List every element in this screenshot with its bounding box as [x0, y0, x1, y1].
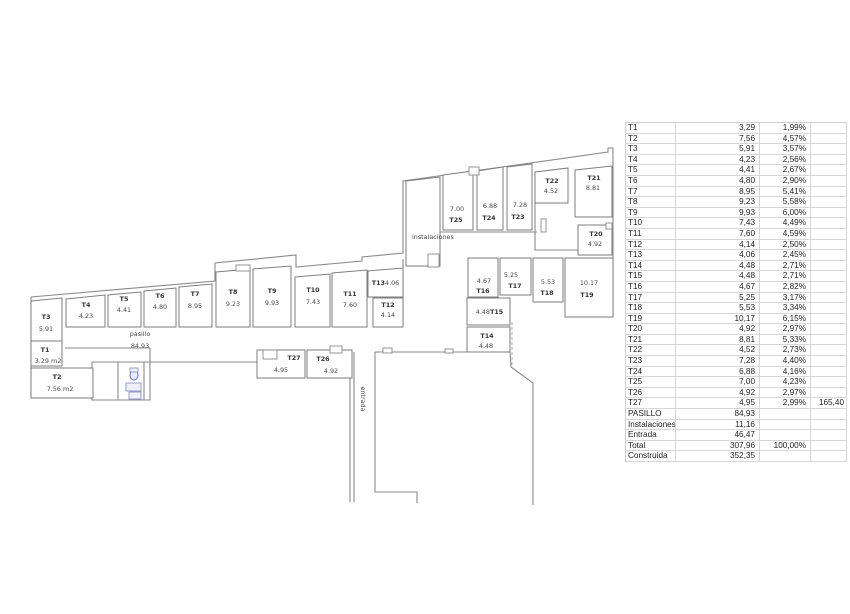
wall: [510, 352, 533, 505]
table-cell-lbl: T16: [626, 282, 676, 293]
room-area: 5.91: [39, 325, 53, 333]
room-name: T26: [316, 355, 330, 363]
room-t12: T124.14: [373, 298, 403, 327]
wall-tab: [330, 346, 342, 353]
room-name: T2: [53, 373, 62, 381]
table-cell-lbl: T3: [626, 144, 676, 155]
table-cell-pct: 3,57%: [760, 144, 811, 155]
table-cell-pct: 1,99%: [760, 123, 811, 134]
room-name: T21: [587, 174, 600, 182]
table-cell-lbl: T11: [626, 229, 676, 240]
table-cell-pct: 2,67%: [760, 165, 811, 176]
table-cell-ext: [811, 218, 847, 229]
table-cell-ext: [811, 420, 847, 431]
table-cell-val: 11,16: [676, 420, 760, 431]
table-cell-ext: [811, 271, 847, 282]
room-name: T12: [381, 301, 394, 309]
table-cell-val: 4,41: [676, 165, 760, 176]
room-t10: T107.43: [295, 274, 330, 327]
room-name: T19: [580, 291, 594, 299]
table-cell-val: 4,14: [676, 240, 760, 251]
table-cell-lbl: T24: [626, 367, 676, 378]
room-t1: T13.29 m2: [31, 341, 62, 366]
table-cell-lbl: T19: [626, 314, 676, 325]
table-cell-lbl: T15: [626, 271, 676, 282]
room-area: 5.53: [541, 278, 555, 286]
room-name: T4: [82, 301, 91, 309]
instalaciones-label: instalaciones: [412, 233, 454, 241]
table-cell-lbl: T25: [626, 377, 676, 388]
room-outline: [253, 266, 291, 327]
table-cell-pct: 2,82%: [760, 282, 811, 293]
table-row: Entrada46,47: [626, 430, 847, 441]
table-row: Construida352,35: [626, 451, 847, 462]
table-cell-val: 84,93: [676, 409, 760, 420]
table-cell-val: 352,35: [676, 451, 760, 462]
room-area: 4.48: [479, 342, 493, 350]
wall-tab: [236, 265, 250, 271]
table-cell-pct: 4,49%: [760, 218, 811, 229]
table-cell-ext: [811, 377, 847, 388]
table-cell-pct: 2,97%: [760, 324, 811, 335]
table-cell-lbl: T18: [626, 303, 676, 314]
room-outline: [565, 258, 613, 317]
table-cell-lbl: Instalaciones: [626, 420, 676, 431]
room-outline: [216, 269, 250, 327]
room-name: T1: [41, 346, 50, 354]
room-name: T16: [476, 287, 490, 295]
table-row: T164,672,82%: [626, 282, 847, 293]
table-cell-pct: 2,56%: [760, 155, 811, 166]
table-row: T89,235,58%: [626, 197, 847, 208]
room-area: 8.81: [586, 184, 600, 192]
room-area: 7.43: [306, 298, 320, 306]
table-cell-ext: [811, 367, 847, 378]
table-cell-val: 7,00: [676, 377, 760, 388]
room-area: 7.00: [450, 205, 464, 213]
table-cell-ext: [811, 324, 847, 335]
room-t17: 5.25T17: [500, 258, 531, 295]
table-row: Instalaciones11,16: [626, 420, 847, 431]
table-cell-pct: 2,73%: [760, 345, 811, 356]
table-cell-lbl: Construida: [626, 451, 676, 462]
table-cell-pct: 2,45%: [760, 250, 811, 261]
table-cell-val: 7,43: [676, 218, 760, 229]
table-cell-ext: [811, 187, 847, 198]
wall-tab: [263, 350, 277, 359]
room-t22: T224.52: [535, 168, 568, 203]
room-t14: T144.48: [467, 327, 510, 352]
table-row: T64,802,90%: [626, 176, 847, 187]
table-cell-pct: [760, 430, 811, 441]
table-cell-ext: [811, 155, 847, 166]
room-area: 4.80: [153, 303, 167, 311]
table-cell-ext: [811, 356, 847, 367]
table-cell-val: 7,56: [676, 134, 760, 145]
wall-tab: [606, 223, 612, 229]
room-t19: 10.17T19: [565, 258, 613, 317]
table-cell-val: 4,48: [676, 261, 760, 272]
table-cell-pct: 6,15%: [760, 314, 811, 325]
pasillo-label: pasillo: [130, 330, 151, 338]
room-name: T17: [508, 282, 521, 290]
table-cell-lbl: T4: [626, 155, 676, 166]
room-name: T20: [589, 230, 603, 238]
table-row: T44,232,56%: [626, 155, 847, 166]
table-cell-pct: 5,58%: [760, 197, 811, 208]
table-row: T134,062,45%: [626, 250, 847, 261]
room-name: T10: [306, 286, 320, 294]
room-t23: 7.28T23: [507, 164, 532, 230]
table-cell-pct: 4,40%: [760, 356, 811, 367]
table-row: T185,533,34%: [626, 303, 847, 314]
table-cell-pct: 2,99%: [760, 398, 811, 409]
room-outline: [31, 368, 93, 398]
room-name: T18: [540, 289, 554, 297]
room-area: 5.25: [504, 271, 518, 279]
table-cell-lbl: T8: [626, 197, 676, 208]
room-area: 10.17: [580, 279, 598, 287]
room-area: 4.52: [544, 187, 558, 195]
room-outline: [332, 270, 367, 327]
table-row: T1910,176,15%: [626, 314, 847, 325]
room-outline: [406, 177, 440, 266]
room-area: 4.95: [274, 366, 288, 374]
table-cell-val: 4,06: [676, 250, 760, 261]
table-row: T99,936,00%: [626, 208, 847, 219]
table-cell-val: 4,80: [676, 176, 760, 187]
room-t16: 4.67T16: [468, 258, 498, 297]
table-row: T224,522,73%: [626, 345, 847, 356]
table-cell-pct: 2,90%: [760, 176, 811, 187]
table-cell-ext: [811, 451, 847, 462]
table-cell-pct: 3,17%: [760, 293, 811, 304]
table-cell-val: 5,91: [676, 144, 760, 155]
table-row: T204,922,97%: [626, 324, 847, 335]
table-row: T218,815,33%: [626, 335, 847, 346]
table-cell-lbl: T9: [626, 208, 676, 219]
table-cell-lbl: T14: [626, 261, 676, 272]
table-cell-val: 3,29: [676, 123, 760, 134]
table-cell-ext: [811, 208, 847, 219]
table-cell-pct: 2,50%: [760, 240, 811, 251]
table-cell-lbl: T22: [626, 345, 676, 356]
table-row: T107,434,49%: [626, 218, 847, 229]
table-cell-ext: [811, 345, 847, 356]
table-row: T117,604,59%: [626, 229, 847, 240]
room-name: T22: [545, 177, 558, 185]
table-cell-ext: [811, 314, 847, 325]
table-row: T54,412,67%: [626, 165, 847, 176]
table-cell-val: 8,95: [676, 187, 760, 198]
table-cell-val: 4,67: [676, 282, 760, 293]
table-cell-lbl: T10: [626, 218, 676, 229]
page: T35.91T13.29 m2T27.56 m2T44.23T54.41T64.…: [0, 0, 850, 614]
room-area: 4.41: [117, 306, 131, 314]
room-area: 4.92: [588, 240, 602, 248]
room-t6: T64.80: [144, 288, 176, 327]
table-row: T124,142,50%: [626, 240, 847, 251]
room-area: 7.56 m2: [47, 385, 74, 393]
wall-tab: [541, 219, 546, 232]
room-outline: [66, 295, 105, 327]
table-cell-val: 4,48: [676, 271, 760, 282]
room-name: T13: [372, 279, 385, 287]
table-cell-ext: [811, 229, 847, 240]
room-t5: T54.41: [108, 292, 141, 327]
room-outline: [535, 168, 568, 203]
wall: [65, 348, 257, 362]
room-name: T15: [490, 308, 503, 316]
table-row: T274,952,99%165,40: [626, 398, 847, 409]
room-t9: T99.93: [253, 266, 291, 327]
room-t7: T78.95: [179, 284, 212, 327]
table-cell-pct: 4,16%: [760, 367, 811, 378]
table-cell-ext: [811, 123, 847, 134]
area-table: T13,291,99%T27,564,57%T35,913,57%T44,232…: [625, 122, 847, 462]
table-cell-val: 46,47: [676, 430, 760, 441]
room-area: 7.28: [513, 201, 527, 209]
room-t26: T264.92: [307, 350, 352, 378]
table-cell-pct: 100,00%: [760, 441, 811, 452]
table-cell-pct: 4,23%: [760, 377, 811, 388]
table-cell-ext: [811, 134, 847, 145]
table-cell-pct: 5,41%: [760, 187, 811, 198]
table-cell-val: 4,52: [676, 345, 760, 356]
table-cell-lbl: T1: [626, 123, 676, 134]
room-t18: 5.53T18: [533, 258, 563, 302]
table-cell-val: 5,25: [676, 293, 760, 304]
room-name: T6: [156, 292, 165, 300]
wall-tab: [383, 348, 392, 353]
table-row: T13,291,99%: [626, 123, 847, 134]
table-cell-lbl: T27: [626, 398, 676, 409]
room-area: 6.88: [483, 202, 497, 210]
table-cell-ext: [811, 430, 847, 441]
table-cell-pct: [760, 409, 811, 420]
table-cell-pct: [760, 451, 811, 462]
room-name: T7: [191, 290, 200, 298]
table-cell-lbl: T23: [626, 356, 676, 367]
room-name: T9: [268, 287, 277, 295]
room-t4: T44.23: [66, 295, 105, 327]
room-t3: T35.91: [31, 298, 62, 341]
table-cell-lbl: Entrada: [626, 430, 676, 441]
table-cell-pct: 2,71%: [760, 261, 811, 272]
table-cell-ext: [811, 441, 847, 452]
room-area: 4.23: [79, 312, 93, 320]
table-cell-val: 8,81: [676, 335, 760, 346]
table-cell-ext: 165,40: [811, 398, 847, 409]
table-row: T154,482,71%: [626, 271, 847, 282]
table-cell-lbl: T17: [626, 293, 676, 304]
table-cell-ext: [811, 165, 847, 176]
table-cell-pct: 3,34%: [760, 303, 811, 314]
room-t11: T117.60: [332, 270, 367, 327]
room-t15: 4.48T15: [467, 298, 510, 325]
table-cell-val: 4,95: [676, 398, 760, 409]
table-cell-val: 6,88: [676, 367, 760, 378]
table-cell-val: 7,28: [676, 356, 760, 367]
entrada-label: entrada: [359, 386, 367, 411]
table-cell-lbl: T20: [626, 324, 676, 335]
table-row: Total307,96100,00%: [626, 441, 847, 452]
table-cell-ext: [811, 409, 847, 420]
table-cell-ext: [811, 293, 847, 304]
room-name: T8: [229, 288, 238, 296]
table-cell-lbl: T2: [626, 134, 676, 145]
room-area: 4.06: [385, 279, 399, 287]
table-cell-pct: 5,33%: [760, 335, 811, 346]
table-cell-lbl: T7: [626, 187, 676, 198]
table-row: T144,482,71%: [626, 261, 847, 272]
table-cell-val: 7,60: [676, 229, 760, 240]
table-cell-pct: 4,59%: [760, 229, 811, 240]
table-cell-pct: [760, 420, 811, 431]
bathroom-fixture-icon: [129, 392, 141, 399]
table-cell-pct: 4,57%: [760, 134, 811, 145]
room-area: 4.67: [477, 277, 491, 285]
table-cell-pct: 2,71%: [760, 271, 811, 282]
table-cell-val: 10,17: [676, 314, 760, 325]
room-area: 4.92: [324, 367, 338, 375]
table-cell-ext: [811, 197, 847, 208]
room-area: 7.60: [343, 301, 357, 309]
pasillo-area: 84.93: [131, 342, 149, 350]
table-cell-ext: [811, 240, 847, 251]
table-cell-lbl: Total: [626, 441, 676, 452]
table-row: T78,955,41%: [626, 187, 847, 198]
table-row: T246,884,16%: [626, 367, 847, 378]
room-t25: 7.00T25: [443, 171, 473, 230]
table-cell-ext: [811, 335, 847, 346]
room-t8: T89.23: [216, 269, 250, 327]
room-name: T27: [287, 354, 300, 362]
room-name: T3: [42, 313, 51, 321]
table-row: T237,284,40%: [626, 356, 847, 367]
room-name: T25: [449, 216, 462, 224]
room-name: T23: [511, 213, 524, 221]
wall-tab: [445, 349, 453, 353]
room-t21: T218.81: [575, 166, 612, 217]
table-cell-val: 9,93: [676, 208, 760, 219]
room-t2: T27.56 m2: [31, 368, 93, 398]
table-cell-val: 4,23: [676, 155, 760, 166]
table-cell-lbl: T21: [626, 335, 676, 346]
table-cell-lbl: T5: [626, 165, 676, 176]
room-t24: 6.88T24: [477, 167, 503, 230]
room-name: T14: [480, 332, 494, 340]
room-t13: T134.06: [368, 268, 403, 297]
room-inst: [406, 177, 440, 266]
table-cell-ext: [811, 388, 847, 399]
room-area: 8.95: [188, 302, 202, 310]
bathroom-fixture-icon: [126, 383, 141, 391]
table-cell-pct: 6,00%: [760, 208, 811, 219]
table-cell-lbl: T26: [626, 388, 676, 399]
table-row: T257,004,23%: [626, 377, 847, 388]
wall: [375, 352, 417, 503]
table-cell-val: 4,92: [676, 324, 760, 335]
table-cell-ext: [811, 282, 847, 293]
table-cell-ext: [811, 176, 847, 187]
room-area: 4.48: [476, 308, 490, 316]
room-area: 9.23: [226, 300, 240, 308]
table-cell-lbl: T6: [626, 176, 676, 187]
wall-tab: [428, 254, 439, 267]
room-name: T24: [482, 214, 496, 222]
table-row: T264,922,97%: [626, 388, 847, 399]
table-cell-ext: [811, 303, 847, 314]
room-area: 4.14: [381, 311, 395, 319]
wall-tab: [469, 167, 479, 175]
bathroom-fixture-icon: [130, 368, 138, 372]
table-cell-pct: 2,97%: [760, 388, 811, 399]
table-row: T27,564,57%: [626, 134, 847, 145]
room-area: 3.29 m2: [35, 357, 62, 365]
table-cell-val: 9,23: [676, 197, 760, 208]
table-row: T35,913,57%: [626, 144, 847, 155]
table-cell-lbl: T13: [626, 250, 676, 261]
table-cell-ext: [811, 144, 847, 155]
room-area: 9.93: [265, 299, 279, 307]
table-cell-lbl: PASILLO: [626, 409, 676, 420]
table-row: T175,253,17%: [626, 293, 847, 304]
table-cell-val: 5,53: [676, 303, 760, 314]
table-cell-ext: [811, 250, 847, 261]
table-row: PASILLO84,93: [626, 409, 847, 420]
room-t20: T204.92: [578, 225, 612, 255]
table-cell-val: 4,92: [676, 388, 760, 399]
table-cell-val: 307,96: [676, 441, 760, 452]
table-cell-ext: [811, 261, 847, 272]
table-cell-lbl: T12: [626, 240, 676, 251]
room-name: T11: [343, 290, 356, 298]
room-name: T5: [120, 295, 129, 303]
